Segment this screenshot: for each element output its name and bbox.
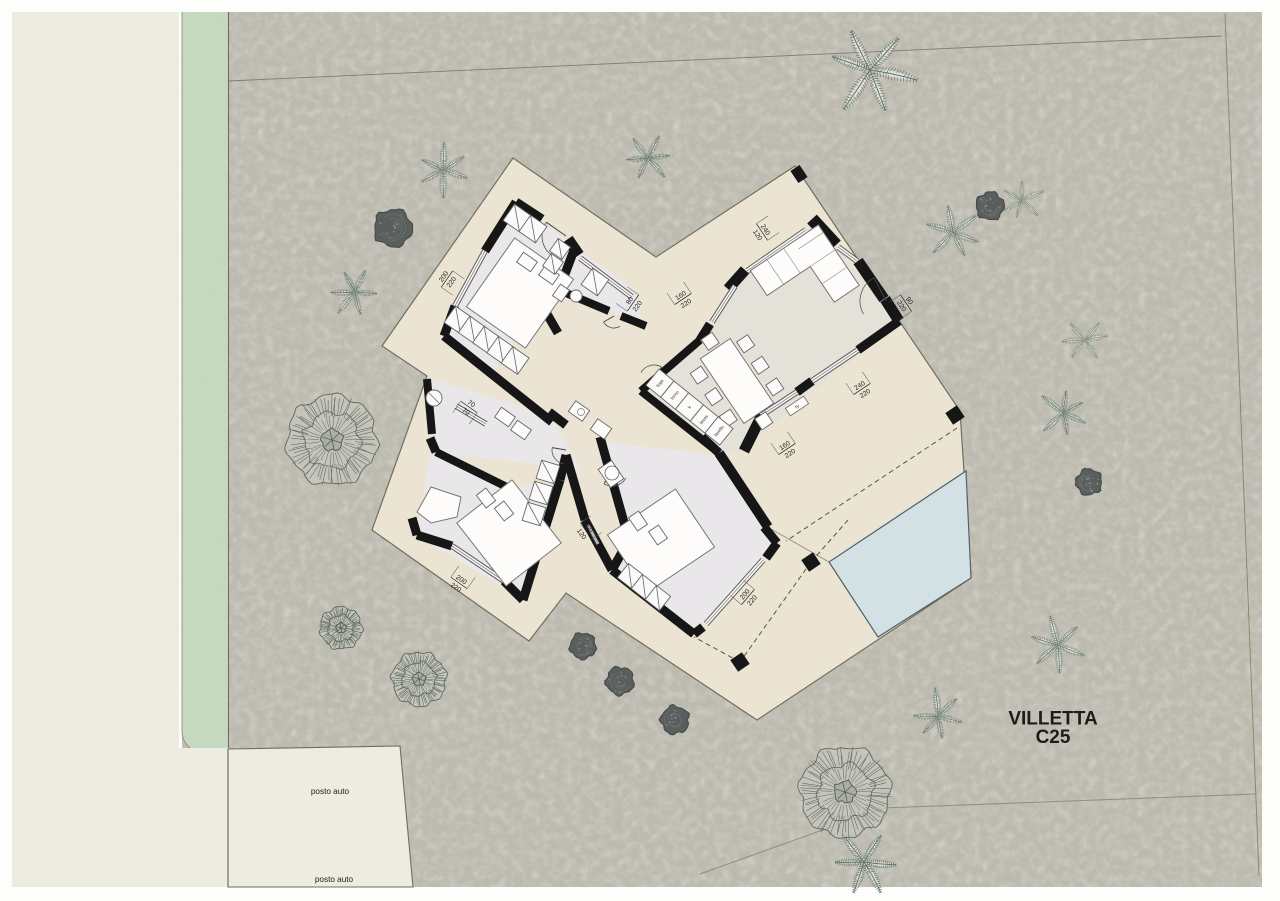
svg-text:posto auto: posto auto	[311, 787, 350, 796]
svg-text:C25: C25	[1036, 727, 1071, 748]
svg-text:posto auto: posto auto	[315, 875, 354, 884]
